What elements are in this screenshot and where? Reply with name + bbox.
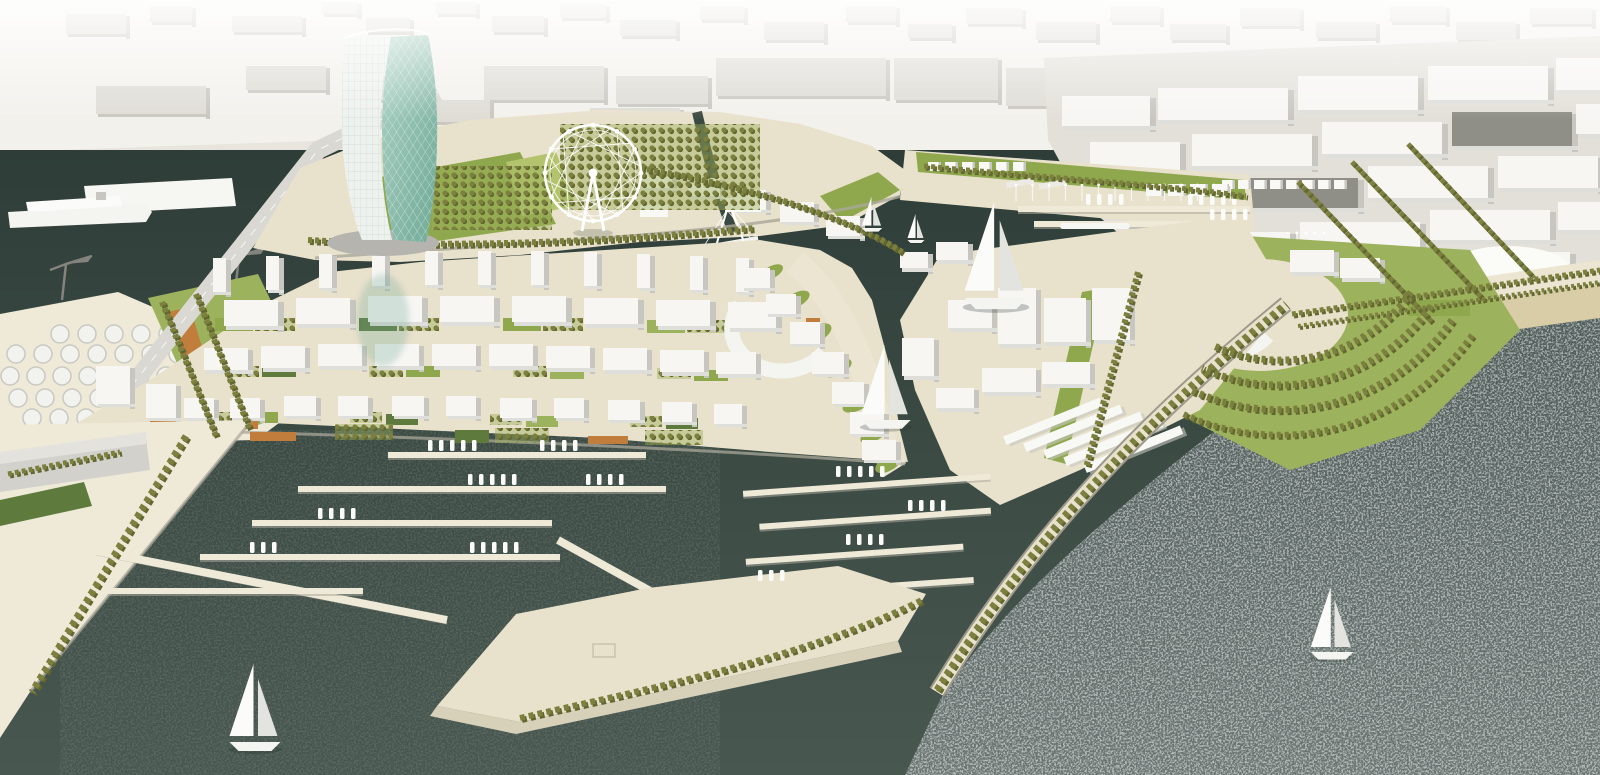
building-front [98, 404, 135, 407]
building-front [1000, 344, 1041, 348]
building-roof [766, 294, 796, 314]
moored-boat [1243, 209, 1248, 220]
building-roof [319, 254, 332, 288]
wheel-shadow [573, 229, 613, 237]
orchard-trees [645, 430, 703, 445]
building-front [514, 322, 572, 326]
horizon-fade [0, 0, 1600, 120]
moored-boat [340, 508, 345, 519]
building-front [1240, 208, 1364, 212]
marina-pier [200, 554, 560, 560]
flag [1213, 184, 1216, 187]
building-front [548, 368, 595, 372]
tent-shed-side [1345, 180, 1348, 189]
tent-shed-side [1265, 180, 1268, 189]
building-front [502, 418, 537, 421]
building-front [782, 222, 819, 225]
building-side [1036, 290, 1041, 350]
building-front [1342, 278, 1385, 282]
moored-boat [908, 500, 913, 511]
moored-boat [586, 474, 591, 485]
building-front [1044, 384, 1095, 388]
moored-boat [329, 508, 334, 519]
building-front [442, 322, 500, 326]
moored-boat [1199, 194, 1204, 205]
building-roof [338, 396, 368, 416]
moored-boat [1232, 209, 1237, 220]
building-front [1046, 342, 1091, 346]
tent-shed-side [1007, 162, 1010, 171]
building-roof [608, 400, 640, 420]
moored-boat [1221, 209, 1226, 220]
building-front [904, 376, 939, 380]
orchard-trees [560, 124, 760, 210]
orchard-trees [335, 424, 393, 440]
building-roof [1290, 250, 1334, 272]
building-front [984, 392, 1041, 396]
moored-boat [261, 542, 266, 553]
flag [1081, 184, 1084, 187]
tent-shed-side [1281, 180, 1284, 189]
building-front [814, 374, 849, 377]
building-front [768, 314, 801, 317]
building-roof [790, 322, 820, 344]
building-front [148, 418, 181, 421]
storage-tank [51, 325, 69, 343]
moored-boat [540, 440, 545, 451]
flag [1287, 232, 1290, 235]
moored-boat [1086, 194, 1091, 205]
building-side [176, 386, 181, 423]
building-front [480, 285, 496, 288]
moored-boat [492, 542, 497, 553]
flag [1180, 184, 1183, 187]
building-front [340, 416, 373, 419]
wheel-gondola [591, 123, 596, 128]
moored-boat [250, 542, 255, 553]
building-roof [432, 344, 476, 366]
building-front [938, 408, 979, 412]
storage-tank [53, 367, 71, 385]
building-roof [224, 300, 278, 326]
moored-boat [490, 474, 495, 485]
moored-boat [1188, 194, 1193, 205]
building-roof [998, 288, 1036, 344]
building-roof [584, 252, 597, 286]
building-roof [489, 344, 533, 366]
building-front [394, 416, 429, 419]
moored-boat [461, 440, 466, 451]
building-front [263, 368, 310, 372]
building-front [730, 328, 782, 332]
building-front [533, 285, 549, 288]
building-roof [862, 440, 896, 460]
building-front [586, 324, 644, 328]
building-front [448, 416, 481, 419]
marina-pier [252, 520, 552, 526]
storage-tank [27, 367, 45, 385]
storage-tank [79, 367, 97, 385]
building-front [692, 290, 708, 293]
moored-boat [318, 508, 323, 519]
moored-boat [769, 570, 774, 581]
moored-boat [608, 474, 613, 485]
pier-shadow [1018, 212, 1250, 214]
wheel-gondola [549, 195, 554, 200]
building-roof [832, 382, 864, 404]
building-roof [318, 344, 362, 366]
moored-boat [1097, 194, 1102, 205]
moored-boat [780, 570, 785, 581]
storage-tank [34, 345, 52, 363]
moored-boat [880, 466, 885, 477]
building-roof [584, 298, 638, 324]
building-front [1194, 166, 1318, 170]
building-front [938, 260, 973, 264]
marina-pier [388, 452, 646, 458]
pier-shadow [108, 594, 363, 596]
storage-tank [78, 325, 96, 343]
wheel-gondola [567, 129, 572, 134]
building-side [650, 256, 655, 293]
building-roof [500, 398, 532, 418]
building-roof [96, 366, 130, 404]
building-side [544, 253, 549, 290]
building-roof [603, 348, 647, 370]
building-roof [812, 352, 844, 374]
building-side [226, 260, 231, 297]
building-front [1292, 272, 1339, 276]
wheel-gondola [567, 212, 572, 217]
wheel-gondola [632, 147, 637, 152]
building-roof [446, 396, 476, 416]
building-front [1094, 340, 1135, 344]
building-side [130, 368, 135, 409]
building-side [703, 258, 708, 295]
building-front [215, 292, 231, 295]
moored-boat [512, 474, 517, 485]
wheel-gondola [543, 171, 548, 176]
moored-boat [439, 440, 444, 451]
moored-boat [501, 474, 506, 485]
moored-boat [450, 440, 455, 451]
building-front [664, 422, 697, 425]
building-side [438, 253, 443, 290]
storage-tank [115, 345, 133, 363]
wheel-gondola [632, 195, 637, 200]
building-front [744, 288, 775, 291]
moored-boat [1210, 209, 1215, 220]
building-front [716, 424, 747, 427]
flag [1305, 232, 1308, 235]
building-front [434, 366, 481, 370]
building-roof [1322, 122, 1442, 154]
building-front [738, 292, 754, 295]
orchard-trees [432, 166, 552, 230]
marina-pier [298, 486, 666, 492]
building-front [639, 288, 655, 291]
storage-tank [132, 325, 150, 343]
moored-boat [868, 534, 873, 545]
building-roof [554, 398, 584, 418]
building-front [902, 268, 933, 272]
building-side [597, 254, 602, 291]
rendering-stage [0, 0, 1600, 775]
wheel-gondola [591, 219, 596, 224]
tent-shed-side [1233, 180, 1236, 189]
storage-tank [105, 325, 123, 343]
tower-reflection [357, 274, 409, 366]
building-front [662, 372, 709, 376]
storage-tank [88, 345, 106, 363]
building-roof [656, 300, 710, 326]
building-roof [637, 254, 650, 288]
ferry-boat [1060, 223, 1130, 229]
moored-boat [470, 542, 475, 553]
moored-boat [428, 440, 433, 451]
wheel-gondola [615, 129, 620, 134]
flag [1031, 184, 1034, 187]
building-front [864, 460, 901, 463]
pier-shadow [388, 458, 646, 460]
moored-boat [479, 474, 484, 485]
building-side [491, 253, 496, 290]
tent-shed-side [1313, 180, 1316, 189]
storage-tank [63, 389, 81, 407]
building-roof [936, 388, 974, 408]
moored-boat [272, 542, 277, 553]
building-front [828, 236, 865, 239]
building-front [834, 404, 869, 407]
moored-boat [514, 542, 519, 553]
building-front [1432, 240, 1556, 244]
moored-boat [846, 534, 851, 545]
building-front [852, 434, 889, 437]
marina-pier [108, 588, 363, 594]
building-roof [982, 368, 1036, 392]
building-front [298, 324, 356, 328]
flag [1097, 184, 1100, 187]
flag [1314, 232, 1317, 235]
storage-tank [61, 345, 79, 363]
moored-boat [941, 500, 946, 511]
moored-boat [879, 534, 884, 545]
moored-boat [1108, 194, 1113, 205]
building-roof [296, 298, 350, 324]
storage-tank [7, 345, 25, 363]
flag [1048, 184, 1051, 187]
building-front [1064, 126, 1156, 130]
storage-tank [36, 389, 54, 407]
building-roof [1042, 362, 1090, 384]
building-roof [900, 252, 928, 268]
building-front [1160, 120, 1294, 124]
building-roof [662, 402, 692, 422]
orange-path [250, 432, 296, 441]
moored-boat [1119, 194, 1124, 205]
building-roof [440, 296, 494, 322]
storage-tank [9, 389, 27, 407]
building-front [605, 370, 652, 374]
building-roof [425, 251, 438, 285]
building-front [1578, 134, 1600, 138]
building-front [658, 326, 716, 330]
moored-boat [551, 440, 556, 451]
building-front [321, 288, 337, 291]
moored-boat [858, 466, 863, 477]
pier-shadow [252, 526, 552, 528]
flag [1015, 184, 1018, 187]
storage-tank [1, 367, 19, 385]
tent-shed-side [1329, 180, 1332, 189]
cruise-ship-funnel [96, 192, 106, 200]
building-roof [742, 268, 770, 288]
building-front [1454, 146, 1578, 150]
wheel-hub [589, 169, 598, 178]
building-roof [392, 396, 424, 416]
moored-boat [919, 500, 924, 511]
pier-shadow [200, 560, 560, 562]
building-front [320, 366, 367, 370]
wheel-gondola [549, 147, 554, 152]
pier-shadow [298, 492, 666, 494]
building-front [792, 344, 825, 347]
building-roof [660, 350, 704, 372]
building-roof [1368, 166, 1488, 198]
building-roof [936, 242, 968, 260]
moored-boat [857, 534, 862, 545]
building-front [491, 366, 538, 370]
building-side [332, 256, 337, 293]
orange-path [588, 436, 628, 444]
building-roof [478, 251, 491, 285]
wheel-gondola [615, 212, 620, 217]
moored-boat [619, 474, 624, 485]
building-roof [284, 396, 316, 416]
building-front [226, 326, 284, 330]
building-roof [902, 338, 934, 376]
building-roof [531, 251, 544, 285]
moored-boat [573, 440, 578, 451]
moored-boat [869, 466, 874, 477]
building-roof [1558, 202, 1600, 230]
building-roof [266, 256, 279, 290]
building-side [1086, 300, 1091, 348]
moored-boat [597, 474, 602, 485]
building-front [950, 328, 997, 332]
building-roof [546, 346, 590, 368]
moored-boat [351, 508, 356, 519]
moored-boat [847, 466, 852, 477]
building-front [1500, 188, 1600, 192]
wheel-gondola [639, 171, 644, 176]
building-roof [714, 404, 742, 424]
moored-boat [468, 474, 473, 485]
moored-boat [930, 500, 935, 511]
tent-shed-side [1024, 162, 1027, 171]
flag [1296, 232, 1299, 235]
building-front [286, 416, 321, 419]
building-side [934, 340, 939, 382]
building-roof [1192, 134, 1312, 166]
moored-boat [481, 542, 486, 553]
building-roof [1498, 156, 1598, 188]
building-front [377, 366, 424, 370]
building-front [586, 286, 602, 289]
marina-pier [1018, 206, 1250, 212]
marina-masterplan-rendering [0, 0, 1600, 775]
building-roof [213, 258, 226, 292]
building-side [279, 258, 284, 295]
flag [1196, 184, 1199, 187]
building-front [610, 420, 645, 423]
building-front [556, 418, 589, 421]
flag [1064, 184, 1067, 187]
moored-boat [836, 466, 841, 477]
building-roof [146, 384, 176, 418]
building-roof [716, 352, 756, 374]
building-roof [1430, 210, 1550, 240]
tent-shed-side [1249, 180, 1252, 189]
building-front [268, 290, 284, 293]
flag [1229, 184, 1232, 187]
moored-boat [758, 570, 763, 581]
flag [1323, 232, 1326, 235]
moored-boat [562, 440, 567, 451]
sailboat-hull [1311, 652, 1354, 660]
building-roof [1044, 298, 1086, 342]
building-front [718, 374, 761, 378]
moored-boat [503, 542, 508, 553]
building-front [1560, 230, 1600, 234]
building-roof [690, 256, 703, 290]
building-front [427, 285, 443, 288]
building-roof [261, 346, 305, 368]
building-roof [512, 296, 566, 322]
lawn-patch [455, 430, 489, 443]
moored-boat [472, 440, 477, 451]
building-front [1324, 154, 1448, 158]
